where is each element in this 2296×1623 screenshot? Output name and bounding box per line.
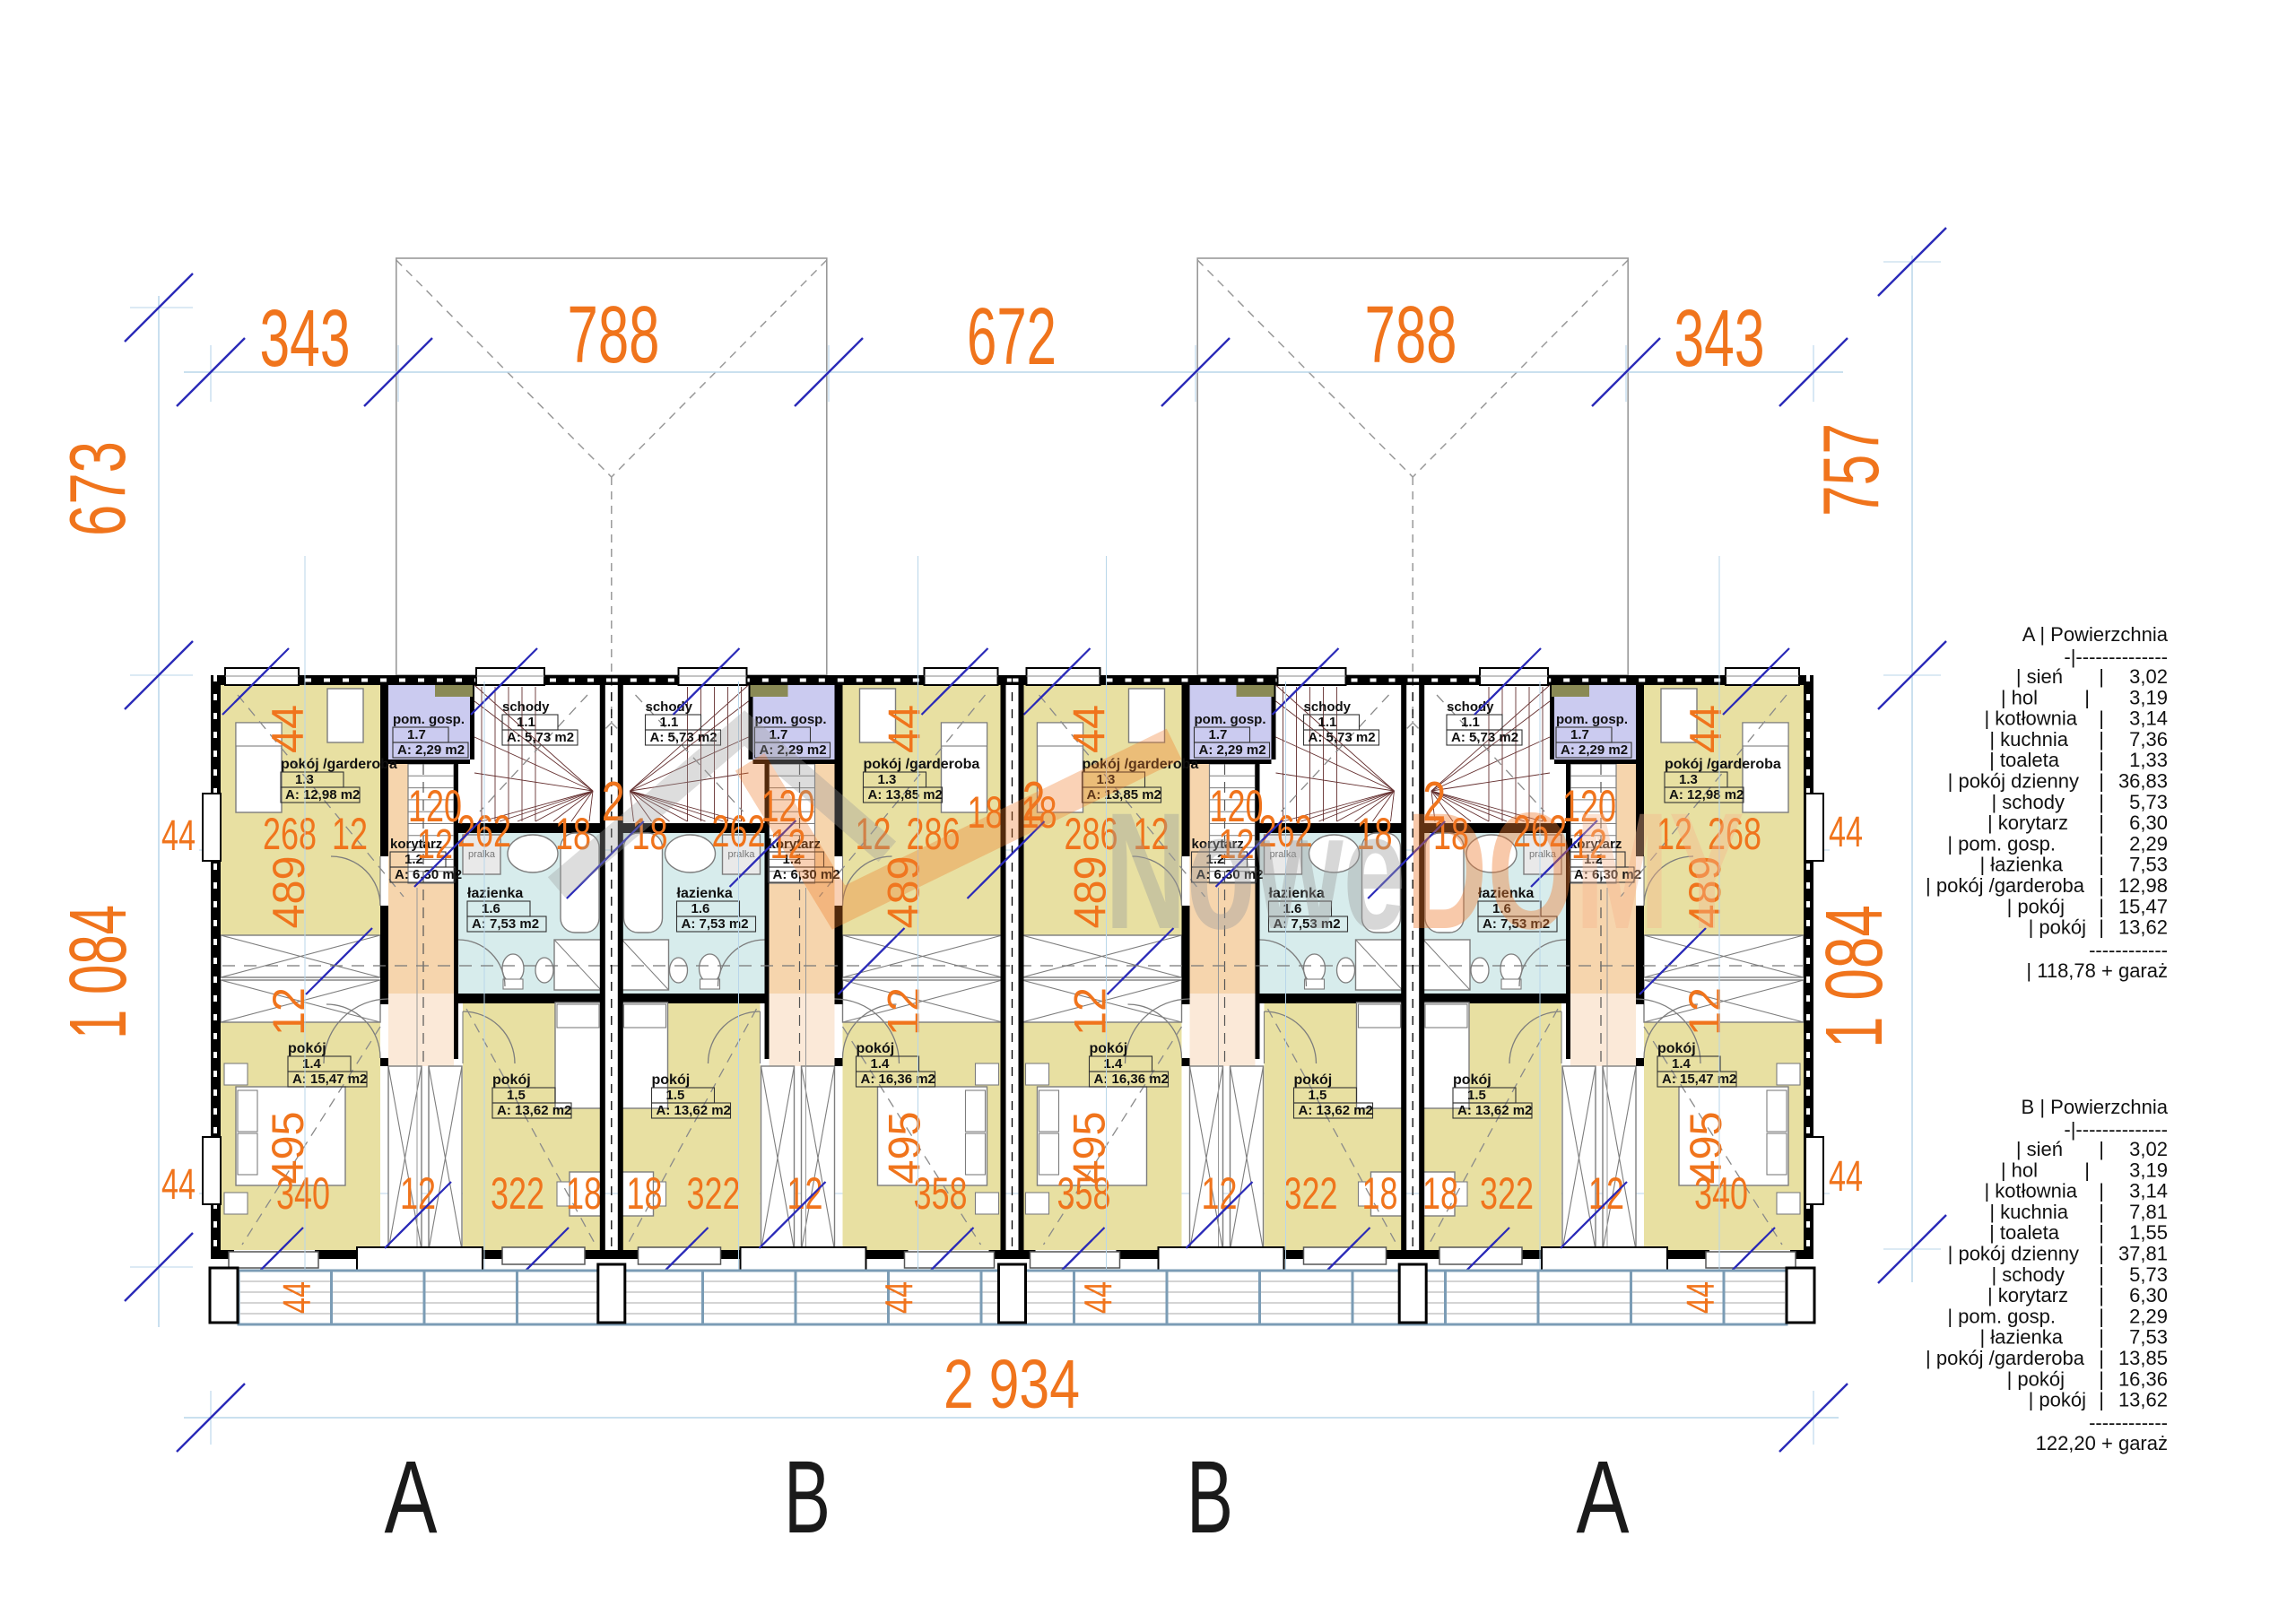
svg-text:673: 673 bbox=[53, 441, 142, 536]
svg-text:| pokój dzienny: | pokój dzienny bbox=[1948, 770, 2079, 793]
svg-text:| toaleta: | toaleta bbox=[1989, 749, 2060, 771]
svg-text:pokój: pokój bbox=[1657, 1041, 1696, 1056]
svg-text:6,30: 6,30 bbox=[2129, 1284, 2168, 1306]
svg-text:A: A bbox=[1577, 1440, 1630, 1555]
svg-text:pokój /garderoba: pokój /garderoba bbox=[281, 757, 397, 772]
svg-text:12,98: 12,98 bbox=[2118, 874, 2168, 897]
svg-text:pom. gosp.: pom. gosp. bbox=[1556, 712, 1628, 727]
svg-text:| pom. gosp.: | pom. gosp. bbox=[1947, 832, 2056, 855]
svg-text:12: 12 bbox=[787, 1168, 823, 1219]
svg-text:788: 788 bbox=[1365, 291, 1457, 380]
svg-text:12: 12 bbox=[879, 987, 929, 1036]
svg-text:2,29: 2,29 bbox=[2129, 1305, 2168, 1327]
svg-text:1,55: 1,55 bbox=[2129, 1221, 2168, 1244]
svg-text:757: 757 bbox=[1806, 423, 1895, 516]
svg-text:A: 7,53 m2: A: 7,53 m2 bbox=[472, 916, 539, 932]
svg-text:343: 343 bbox=[1674, 294, 1765, 384]
svg-text:1.7: 1.7 bbox=[407, 727, 426, 742]
svg-text:|: | bbox=[2099, 1243, 2104, 1265]
svg-text:3,02: 3,02 bbox=[2129, 665, 2168, 688]
svg-text:7,53: 7,53 bbox=[2129, 1326, 2168, 1349]
svg-text:| korytarz: | korytarz bbox=[1987, 811, 2068, 834]
svg-text:|: | bbox=[2084, 1159, 2090, 1181]
svg-text:340: 340 bbox=[1694, 1168, 1748, 1219]
svg-text:|: | bbox=[2099, 916, 2104, 939]
svg-text:489: 489 bbox=[264, 856, 314, 929]
svg-text:pokój /garderoba: pokój /garderoba bbox=[1665, 757, 1781, 772]
svg-text:| pokój: | pokój bbox=[2029, 916, 2086, 939]
svg-text:122,20 + garaż: 122,20 + garaż bbox=[2036, 1432, 2168, 1454]
svg-text:B: B bbox=[1187, 1440, 1233, 1555]
svg-text:pokój: pokój bbox=[1294, 1072, 1333, 1088]
svg-text:pokój: pokój bbox=[492, 1072, 531, 1088]
svg-text:| kuchnia: | kuchnia bbox=[1989, 1201, 2068, 1223]
svg-text:łazienka: łazienka bbox=[467, 886, 523, 901]
svg-text:1.1: 1.1 bbox=[517, 715, 535, 730]
svg-text:36,83: 36,83 bbox=[2118, 770, 2168, 793]
svg-text:| hol: | hol bbox=[2001, 1159, 2038, 1181]
svg-text:1,33: 1,33 bbox=[2129, 749, 2168, 771]
svg-text:1.4: 1.4 bbox=[871, 1056, 891, 1072]
svg-text:A: 6,30 m2: A: 6,30 m2 bbox=[395, 867, 462, 882]
svg-text:A: 13,62 m2: A: 13,62 m2 bbox=[1457, 1103, 1532, 1118]
svg-text:|: | bbox=[2099, 728, 2104, 751]
svg-text:pokój: pokój bbox=[288, 1041, 326, 1056]
svg-text:3,19: 3,19 bbox=[2129, 1159, 2168, 1181]
svg-text:3,14: 3,14 bbox=[2129, 1180, 2168, 1202]
svg-text:| łazienka: | łazienka bbox=[1979, 1326, 2063, 1349]
svg-text:322: 322 bbox=[1480, 1168, 1534, 1219]
svg-text:| pokój: | pokój bbox=[2029, 1389, 2086, 1411]
svg-text:12: 12 bbox=[1680, 987, 1730, 1036]
svg-text:3,14: 3,14 bbox=[2129, 707, 2168, 730]
svg-text:1.3: 1.3 bbox=[878, 772, 897, 787]
svg-text:A: 15,47 m2: A: 15,47 m2 bbox=[292, 1072, 367, 1087]
svg-text:1 084: 1 084 bbox=[54, 905, 143, 1039]
svg-text:44: 44 bbox=[1077, 1281, 1121, 1314]
svg-text:| pokój /garderoba: | pokój /garderoba bbox=[1926, 1347, 2085, 1369]
svg-text:358: 358 bbox=[1057, 1168, 1111, 1219]
svg-text:788: 788 bbox=[568, 291, 660, 380]
svg-text:| łazienka: | łazienka bbox=[1979, 854, 2063, 876]
svg-text:343: 343 bbox=[260, 294, 351, 384]
svg-text:15,47: 15,47 bbox=[2118, 895, 2168, 917]
svg-text:------------: ------------ bbox=[2089, 1411, 2168, 1434]
svg-text:|: | bbox=[2099, 895, 2104, 917]
svg-text:A: 16,36 m2: A: 16,36 m2 bbox=[861, 1072, 935, 1087]
svg-text:A: 2,29 m2: A: 2,29 m2 bbox=[1199, 742, 1266, 758]
svg-text:2,29: 2,29 bbox=[2129, 832, 2168, 855]
svg-text:1 084: 1 084 bbox=[1810, 905, 1900, 1048]
svg-text:------------: ------------ bbox=[2089, 939, 2168, 961]
svg-text:| pokój dzienny: | pokój dzienny bbox=[1948, 1243, 2079, 1265]
svg-text:|: | bbox=[2099, 1284, 2104, 1306]
svg-text:B | Powierzchnia: B | Powierzchnia bbox=[2022, 1096, 2169, 1118]
svg-text:1.6: 1.6 bbox=[691, 901, 710, 916]
svg-text:1.1: 1.1 bbox=[1318, 715, 1337, 730]
svg-text:7,53: 7,53 bbox=[2129, 854, 2168, 876]
svg-text:| schody: | schody bbox=[1991, 791, 2065, 813]
svg-text:1.7: 1.7 bbox=[1570, 727, 1589, 742]
svg-text:3,19: 3,19 bbox=[2129, 686, 2168, 708]
svg-text:|: | bbox=[2099, 749, 2104, 771]
svg-text:322: 322 bbox=[491, 1168, 544, 1219]
svg-text:|: | bbox=[2099, 791, 2104, 813]
svg-text:1.5: 1.5 bbox=[666, 1088, 685, 1103]
svg-text:pokój: pokój bbox=[857, 1041, 895, 1056]
svg-text:| pokój /garderoba: | pokój /garderoba bbox=[1926, 874, 2085, 897]
svg-text:12: 12 bbox=[1588, 1168, 1624, 1219]
svg-text:6,30: 6,30 bbox=[2129, 811, 2168, 834]
svg-text:5,73: 5,73 bbox=[2129, 791, 2168, 813]
svg-text:| pokój: | pokój bbox=[2007, 895, 2065, 917]
svg-text:A: 2,29 m2: A: 2,29 m2 bbox=[1561, 742, 1628, 758]
svg-text:A: 5,73 m2: A: 5,73 m2 bbox=[1451, 730, 1518, 745]
svg-text:|: | bbox=[2099, 1347, 2104, 1369]
svg-text:|: | bbox=[2099, 1305, 2104, 1327]
svg-text:44: 44 bbox=[1065, 705, 1115, 753]
svg-text:2 934: 2 934 bbox=[944, 1346, 1080, 1423]
svg-text:A | Powierzchnia: A | Powierzchnia bbox=[2022, 623, 2169, 646]
svg-text:44: 44 bbox=[263, 705, 313, 753]
svg-text:1.4: 1.4 bbox=[1672, 1056, 1692, 1072]
svg-text:|: | bbox=[2099, 874, 2104, 897]
svg-text:18: 18 bbox=[1422, 1168, 1458, 1219]
svg-text:|: | bbox=[2084, 686, 2090, 708]
svg-text:pom. gosp.: pom. gosp. bbox=[393, 712, 465, 727]
svg-text:|: | bbox=[2099, 1201, 2104, 1223]
svg-text:1.5: 1.5 bbox=[507, 1088, 526, 1103]
svg-text:B: B bbox=[784, 1440, 831, 1555]
svg-text:A: 5,73 m2: A: 5,73 m2 bbox=[507, 730, 574, 745]
svg-text:A: 13,62 m2: A: 13,62 m2 bbox=[657, 1103, 731, 1118]
svg-text:44: 44 bbox=[878, 1281, 922, 1314]
svg-text:|: | bbox=[2099, 1138, 2104, 1160]
svg-text:1.7: 1.7 bbox=[1209, 727, 1228, 742]
svg-text:A: 15,47 m2: A: 15,47 m2 bbox=[1662, 1072, 1736, 1087]
svg-text:|: | bbox=[2099, 707, 2104, 730]
svg-text:A: A bbox=[385, 1440, 438, 1555]
svg-text:| pokój: | pokój bbox=[2007, 1367, 2065, 1390]
svg-text:|: | bbox=[2099, 811, 2104, 834]
svg-text:5,73: 5,73 bbox=[2129, 1263, 2168, 1286]
svg-text:44: 44 bbox=[1679, 1281, 1723, 1314]
svg-text:pom. gosp.: pom. gosp. bbox=[1195, 712, 1266, 727]
svg-text:|: | bbox=[2099, 770, 2104, 793]
svg-text:schody: schody bbox=[502, 699, 550, 715]
svg-text:|: | bbox=[2099, 1367, 2104, 1390]
svg-text:| schody: | schody bbox=[1991, 1263, 2065, 1286]
svg-text:pokój: pokój bbox=[652, 1072, 691, 1088]
svg-text:1.1: 1.1 bbox=[660, 715, 679, 730]
svg-text:pokój /garderoba: pokój /garderoba bbox=[864, 757, 980, 772]
svg-text:44: 44 bbox=[161, 812, 196, 860]
svg-text:A: 13,62 m2: A: 13,62 m2 bbox=[1299, 1103, 1373, 1118]
svg-text:44: 44 bbox=[275, 1281, 319, 1314]
svg-text:schody: schody bbox=[1304, 699, 1352, 715]
svg-text:44: 44 bbox=[1681, 705, 1731, 753]
svg-text:12: 12 bbox=[332, 809, 368, 859]
svg-text:18: 18 bbox=[566, 1168, 602, 1219]
svg-text:| kuchnia: | kuchnia bbox=[1989, 728, 2068, 751]
svg-text:| kotłownia: | kotłownia bbox=[1984, 707, 2077, 730]
svg-text:322: 322 bbox=[1284, 1168, 1338, 1219]
svg-text:44: 44 bbox=[161, 1161, 196, 1209]
svg-text:A: 2,29 m2: A: 2,29 m2 bbox=[397, 742, 465, 758]
svg-text:| korytarz: | korytarz bbox=[1987, 1284, 2068, 1306]
svg-text:|: | bbox=[2099, 1326, 2104, 1349]
svg-text:A: 13,85 m2: A: 13,85 m2 bbox=[868, 787, 943, 803]
svg-text:37,81: 37,81 bbox=[2118, 1243, 2168, 1265]
svg-text:16,36: 16,36 bbox=[2118, 1367, 2168, 1390]
svg-text:672: 672 bbox=[967, 292, 1057, 382]
svg-text:340: 340 bbox=[276, 1168, 330, 1219]
svg-text:7,36: 7,36 bbox=[2129, 728, 2168, 751]
svg-text:| toaleta: | toaleta bbox=[1989, 1221, 2060, 1244]
svg-text:| sień: | sień bbox=[2016, 1138, 2063, 1160]
svg-text:pokój: pokój bbox=[1090, 1041, 1128, 1056]
svg-text:|: | bbox=[2099, 1389, 2104, 1411]
svg-text:NoweDOMY: NoweDOMY bbox=[1105, 778, 1744, 964]
svg-text:|: | bbox=[2099, 854, 2104, 876]
svg-text:| hol: | hol bbox=[2001, 686, 2038, 708]
svg-text:13,62: 13,62 bbox=[2118, 1389, 2168, 1411]
svg-text:łazienka: łazienka bbox=[677, 886, 733, 901]
svg-text:358: 358 bbox=[914, 1168, 968, 1219]
svg-text:18: 18 bbox=[1362, 1168, 1398, 1219]
svg-text:12: 12 bbox=[1202, 1168, 1238, 1219]
svg-text:|: | bbox=[2099, 1221, 2104, 1244]
svg-text:| sień: | sień bbox=[2016, 665, 2063, 688]
svg-text:pokój: pokój bbox=[1453, 1072, 1492, 1088]
svg-text:18: 18 bbox=[627, 1168, 663, 1219]
svg-text:A: 16,36 m2: A: 16,36 m2 bbox=[1094, 1072, 1169, 1087]
svg-text:|: | bbox=[2099, 832, 2104, 855]
svg-text:322: 322 bbox=[687, 1168, 741, 1219]
svg-text:44: 44 bbox=[1829, 809, 1863, 856]
svg-text:7,81: 7,81 bbox=[2129, 1201, 2168, 1223]
svg-text:A: 5,73 m2: A: 5,73 m2 bbox=[1309, 730, 1376, 745]
svg-text:1.5: 1.5 bbox=[1467, 1088, 1486, 1103]
svg-text:|: | bbox=[2099, 1263, 2104, 1286]
svg-text:12: 12 bbox=[417, 820, 453, 867]
svg-text:1.3: 1.3 bbox=[295, 772, 314, 787]
svg-text:| 118,78 + garaż: | 118,78 + garaż bbox=[2026, 959, 2168, 982]
svg-text:| kotłownia: | kotłownia bbox=[1984, 1180, 2077, 1202]
svg-text:13,85: 13,85 bbox=[2118, 1347, 2168, 1369]
svg-text:12: 12 bbox=[400, 1168, 436, 1219]
svg-text:44: 44 bbox=[880, 705, 930, 753]
svg-text:13,62: 13,62 bbox=[2118, 916, 2168, 939]
svg-text:|: | bbox=[2099, 1180, 2104, 1202]
svg-text:1.5: 1.5 bbox=[1309, 1088, 1327, 1103]
svg-text:|: | bbox=[2099, 665, 2104, 688]
svg-text:A: 12,98 m2: A: 12,98 m2 bbox=[285, 787, 360, 803]
svg-text:pom. gosp.: pom. gosp. bbox=[755, 712, 827, 727]
svg-text:268: 268 bbox=[263, 809, 317, 859]
svg-text:A: 13,62 m2: A: 13,62 m2 bbox=[497, 1103, 571, 1118]
svg-text:44: 44 bbox=[1829, 1153, 1863, 1201]
svg-text:3,02: 3,02 bbox=[2129, 1138, 2168, 1160]
svg-text:| pom. gosp.: | pom. gosp. bbox=[1947, 1305, 2056, 1327]
svg-text:1.1: 1.1 bbox=[1461, 715, 1480, 730]
